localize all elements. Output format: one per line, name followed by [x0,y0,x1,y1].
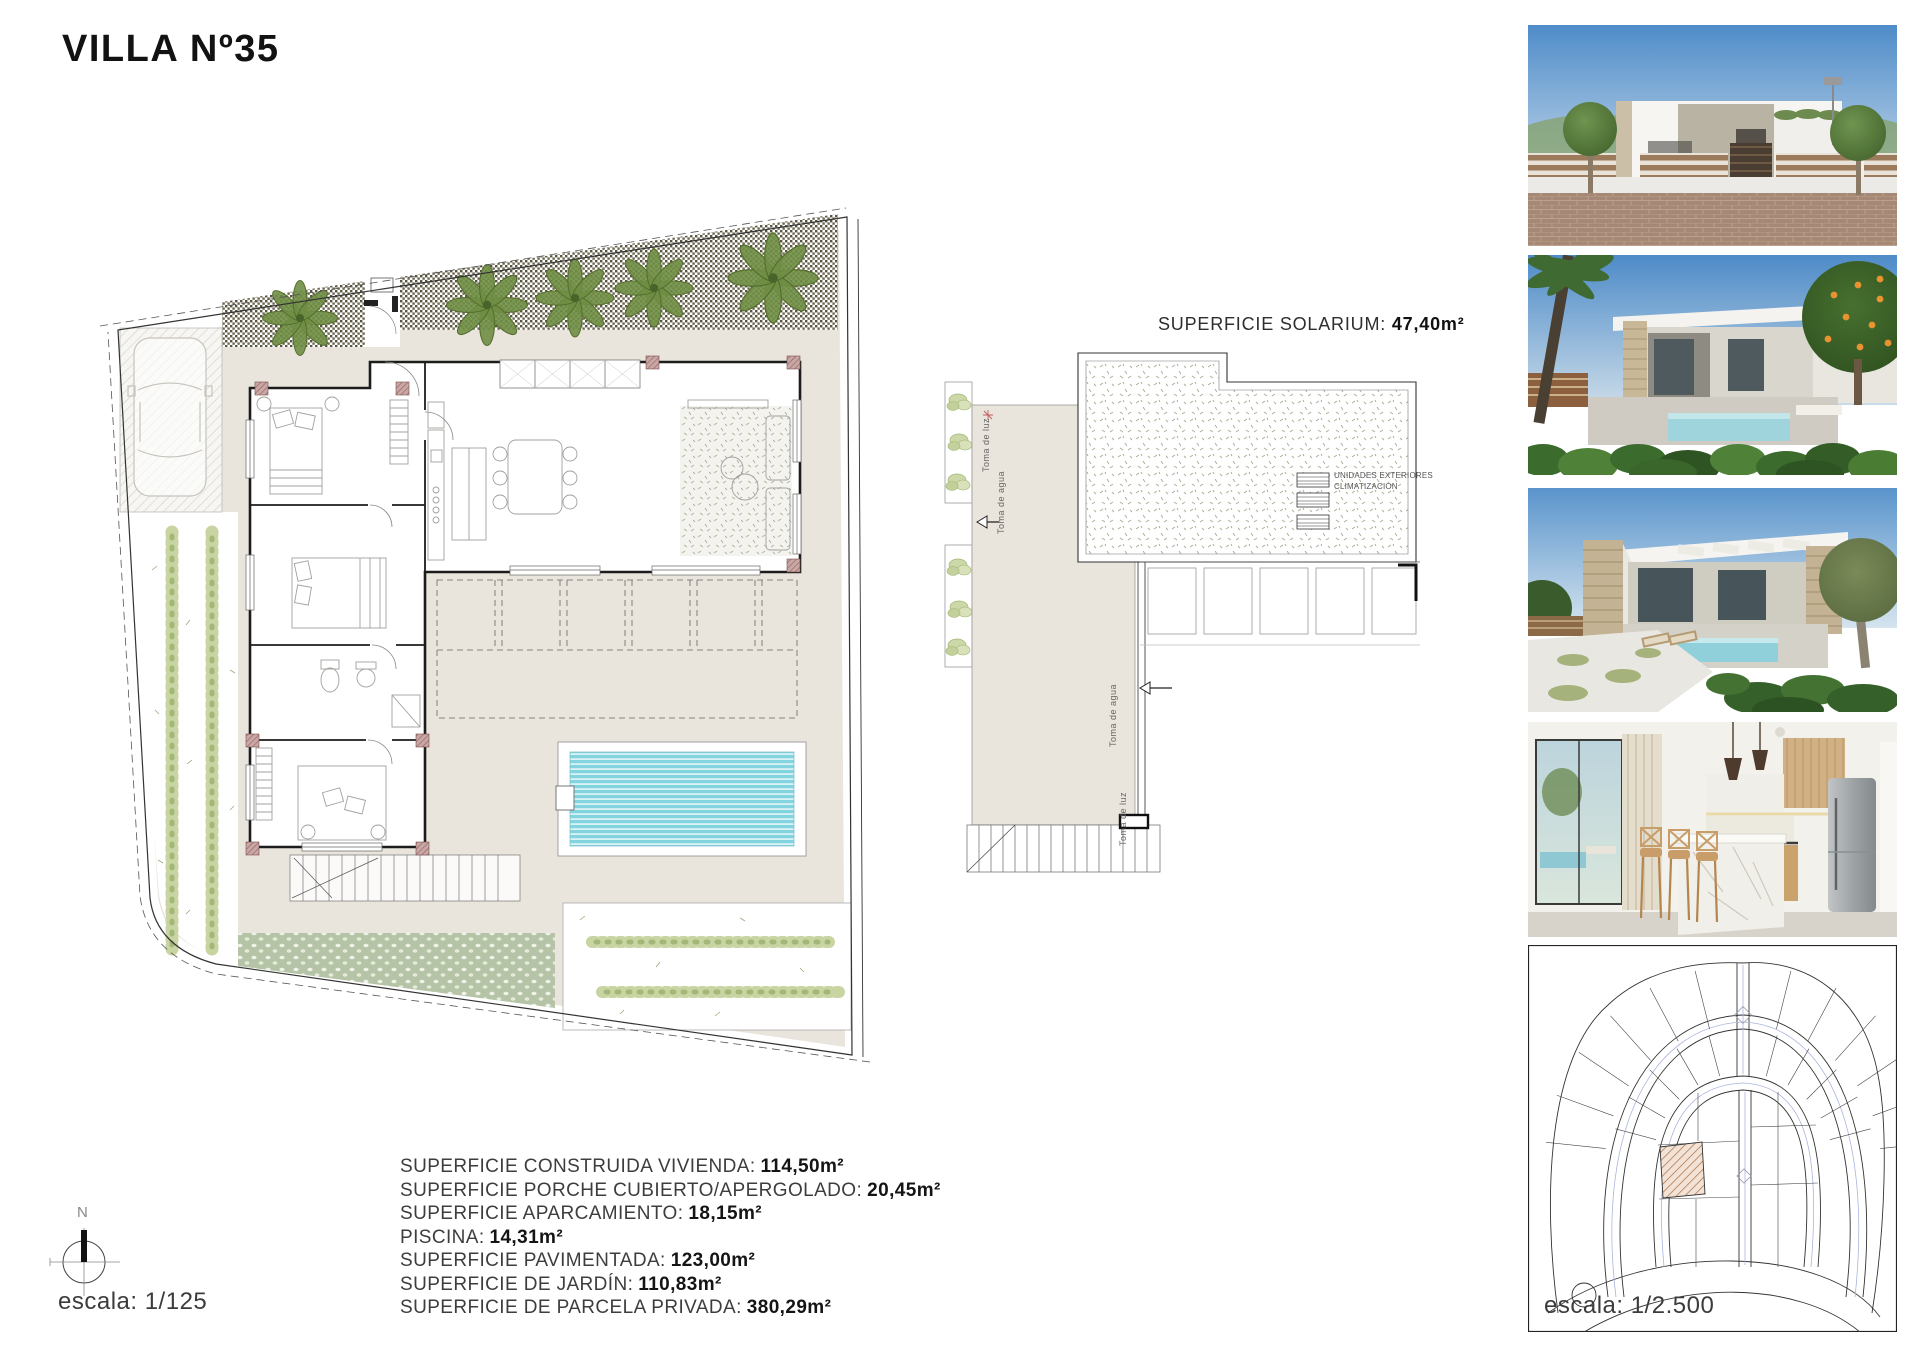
area-row: SUPERFICIE DE PARCELA PRIVADA:380,29m² [400,1296,941,1320]
roof-hedge-planters [945,382,972,667]
facade-render-photo [1528,25,1897,246]
pool [556,742,806,856]
carport [120,328,222,512]
area-row: SUPERFICIE DE JARDÍN:110,83m² [400,1273,941,1297]
car-symbol [128,338,212,496]
ground-floor-plan [40,150,870,1070]
ground-plan-scale: escala: 1/125 [58,1288,207,1316]
area-schedule: SUPERFICIE CONSTRUIDA VIVIENDA:114,50m² … [400,1155,941,1320]
area-row: SUPERFICIE APARCAMIENTO:18,15m² [400,1202,941,1226]
water-outlet-label: Toma de agua [996,468,1006,534]
power-outlet-label: Toma de luz [1118,790,1128,846]
palm-tree-icon [263,281,338,356]
parapet-lines [1138,558,1145,825]
water-outlet-label: Toma de agua [1108,681,1118,747]
area-row: SUPERFICIE PAVIMENTADA:123,00m² [400,1249,941,1273]
roof-solarium-plan [935,345,1510,885]
site-plan-scale: escala: 1/2.500 [1544,1292,1714,1320]
page-title: VILLA Nº35 [62,28,280,71]
area-row: SUPERFICIE CONSTRUIDA VIVIENDA:114,50m² [400,1155,941,1179]
solarium-area-title: SUPERFICIE SOLARIUM: 47,40m² [1158,314,1465,335]
ac-units [1297,473,1329,529]
foreground-plants [1706,673,1897,712]
exterior-stairs [290,855,520,901]
area-row: PISCINA:14,31m² [400,1226,941,1250]
ac-units-label: UNIDADES EXTERIORES CLIMATIZACIÓN [1334,470,1464,492]
south-green-paving [238,933,555,1008]
power-outlet-label: Toma de luz [981,416,991,472]
kitchen-render-photo [1528,722,1897,937]
solarium-deck [1078,353,1416,562]
palm-tree-icon [615,249,693,327]
north-compass-icon [48,1210,128,1300]
area-row: SUPERFICIE PORCHE CUBIERTO/APERGOLADO:20… [400,1179,941,1203]
villa-parcel-highlight [1660,1142,1705,1198]
pool-garden-render-photo [1528,255,1897,475]
site-plan [1528,945,1897,1332]
foreground-plants [1528,443,1897,475]
plan-sheet: VILLA Nº35 [0,0,1920,1357]
roof-pergola-row [1140,562,1420,645]
palm-tree-icon [536,259,614,337]
palm-tree-icon [728,233,818,323]
villa-pool-render-photo [1528,488,1897,712]
